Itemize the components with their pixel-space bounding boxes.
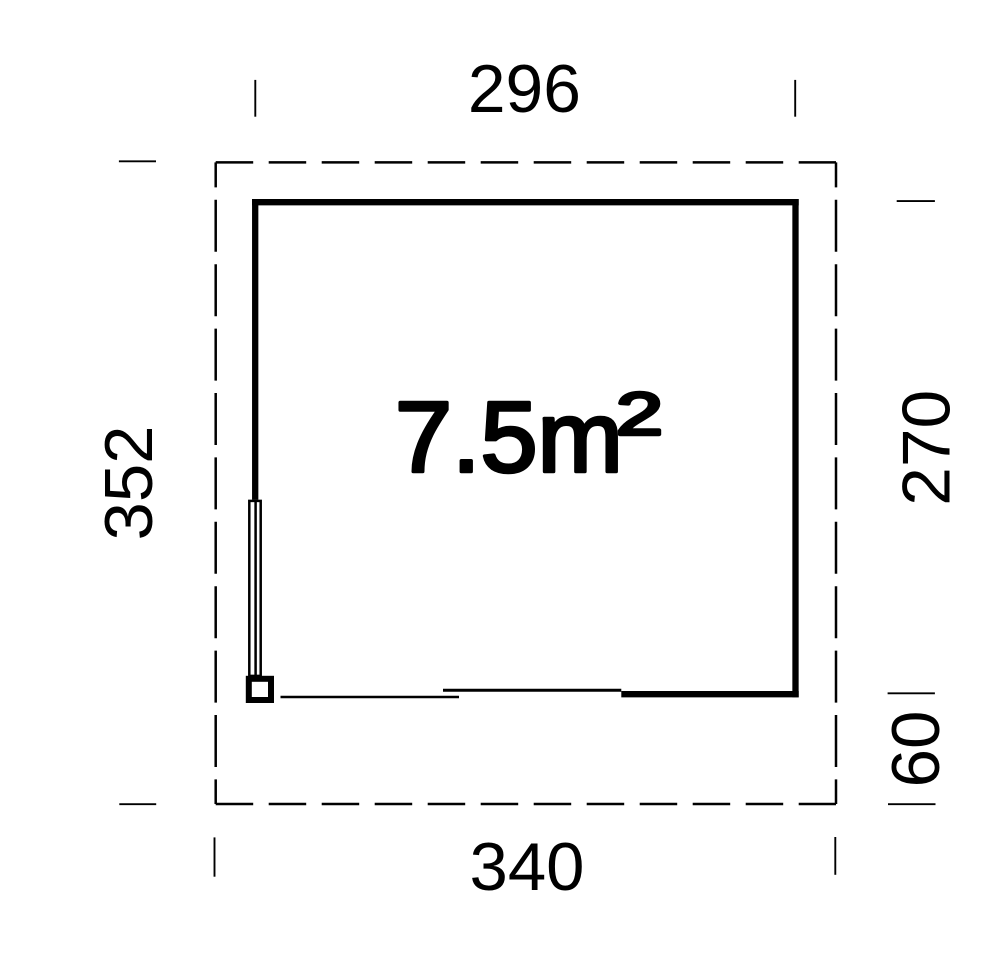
svg-text:296: 296 — [468, 51, 581, 127]
svg-text:7.5m: 7.5m — [395, 382, 623, 494]
svg-text:270: 270 — [889, 390, 965, 506]
svg-text:2: 2 — [616, 381, 663, 448]
svg-text:340: 340 — [470, 829, 585, 905]
svg-text:352: 352 — [91, 426, 167, 541]
svg-text:60: 60 — [878, 711, 954, 788]
